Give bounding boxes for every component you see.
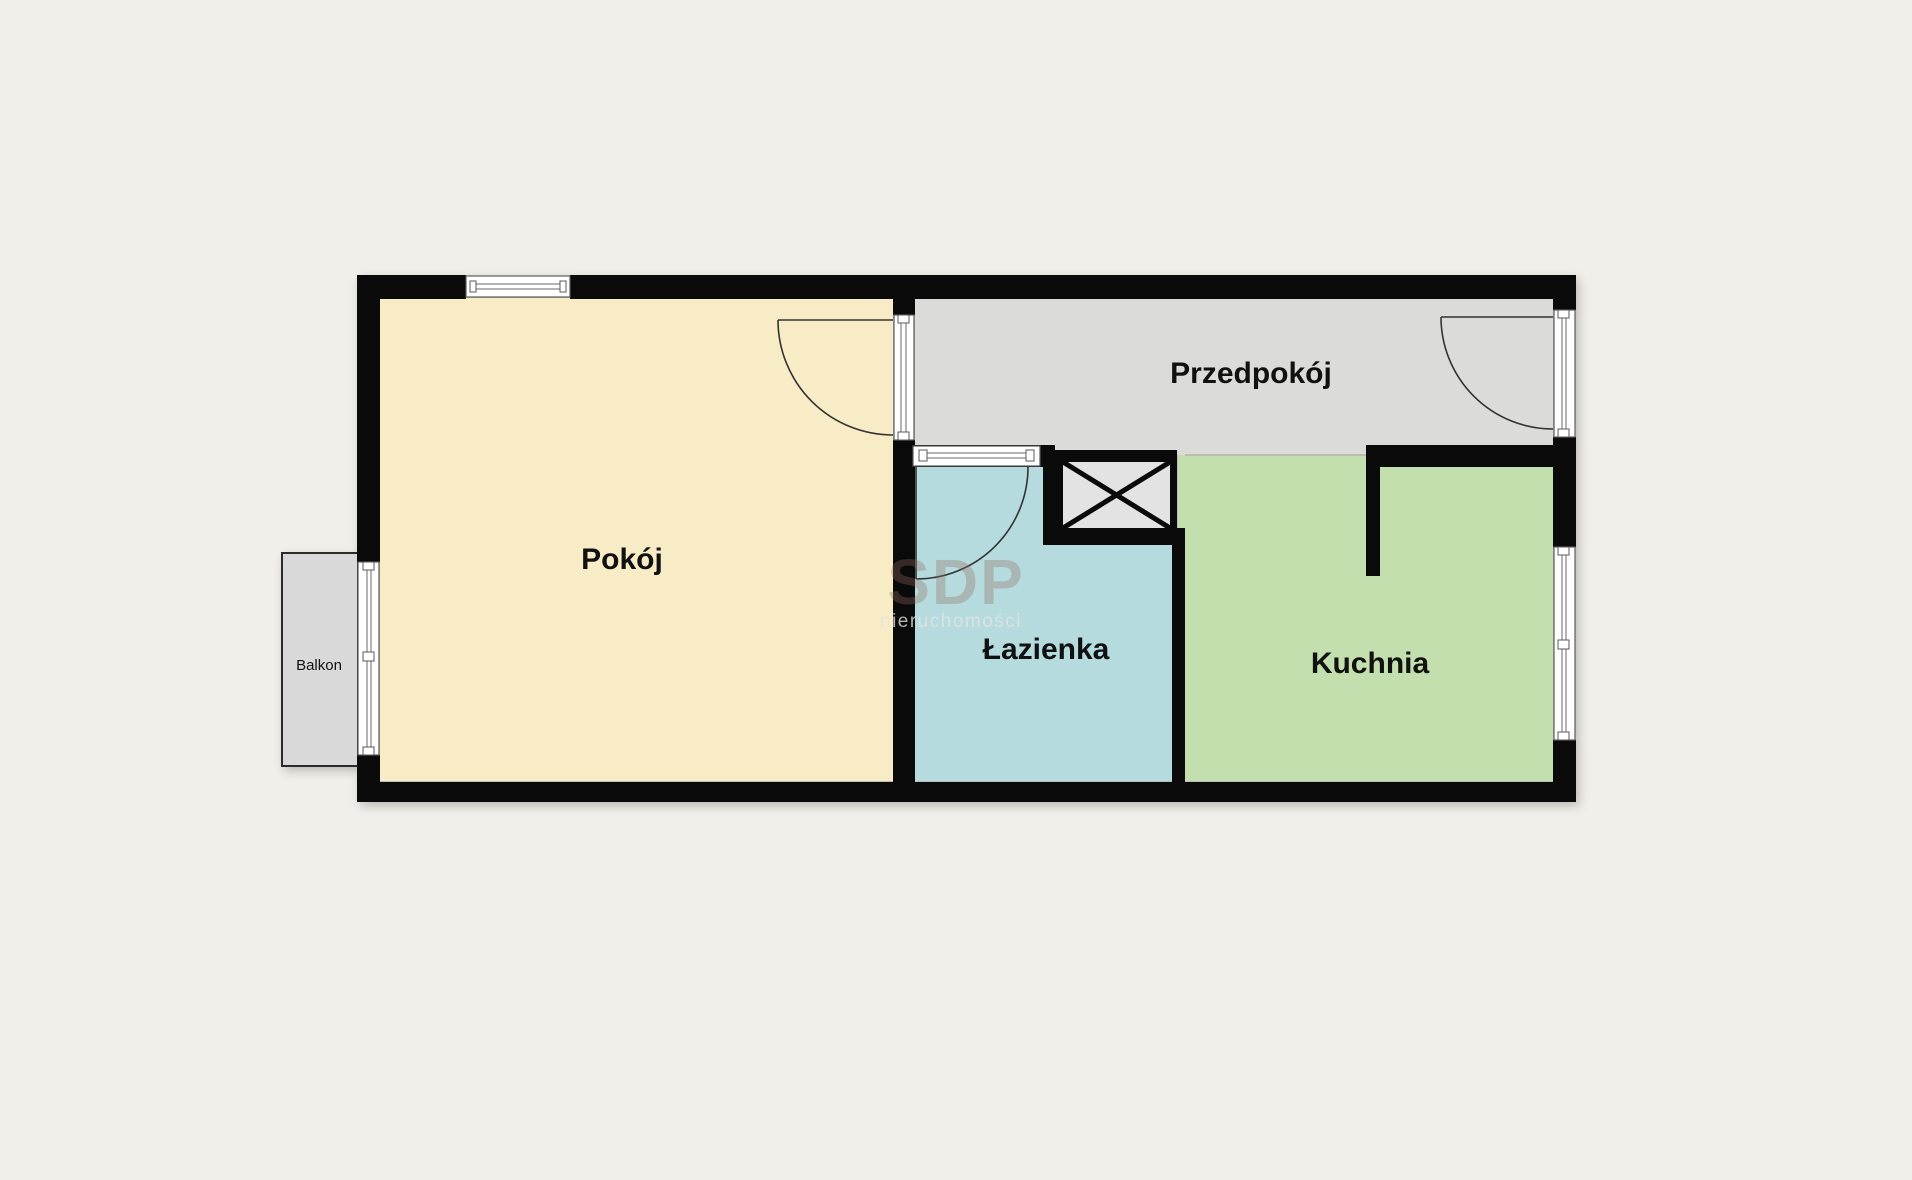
wall-segment bbox=[357, 275, 380, 562]
room-label-balkon: Balkon bbox=[296, 657, 342, 674]
room-pokoj bbox=[380, 298, 893, 781]
room-label-przedpokoj: Przedpokój bbox=[1170, 357, 1332, 390]
lazienka-door bbox=[913, 446, 1040, 466]
wall-segment bbox=[357, 782, 1576, 802]
wall-segment bbox=[1366, 445, 1553, 467]
window-kuchnia bbox=[1554, 547, 1575, 740]
wall-segment bbox=[1172, 528, 1185, 782]
entrance-door bbox=[1554, 310, 1575, 437]
balcony-door bbox=[358, 562, 379, 755]
window-pokoj bbox=[466, 276, 570, 297]
wall-segment bbox=[1366, 445, 1380, 576]
watermark-logo: SDP bbox=[887, 546, 1025, 618]
plan-group: SDP nieruchomości Pokój Przedpokój Łazie… bbox=[282, 275, 1576, 802]
room-label-lazienka: Łazienka bbox=[983, 633, 1110, 666]
wall-segment bbox=[570, 275, 1576, 299]
watermark-subtitle: nieruchomości bbox=[880, 611, 1022, 632]
floor-plan: SDP nieruchomości Pokój Przedpokój Łazie… bbox=[0, 0, 1912, 1180]
wall-segment bbox=[357, 755, 380, 802]
wall-segment bbox=[1553, 740, 1576, 802]
room-kuchnia bbox=[1178, 455, 1553, 781]
room-label-pokoj: Pokój bbox=[581, 543, 663, 576]
wall-segment bbox=[1553, 437, 1576, 547]
wall-segment bbox=[1553, 275, 1576, 310]
pokoj-door bbox=[894, 315, 914, 440]
room-label-kuchnia: Kuchnia bbox=[1311, 647, 1430, 680]
wall-segment bbox=[893, 298, 915, 315]
